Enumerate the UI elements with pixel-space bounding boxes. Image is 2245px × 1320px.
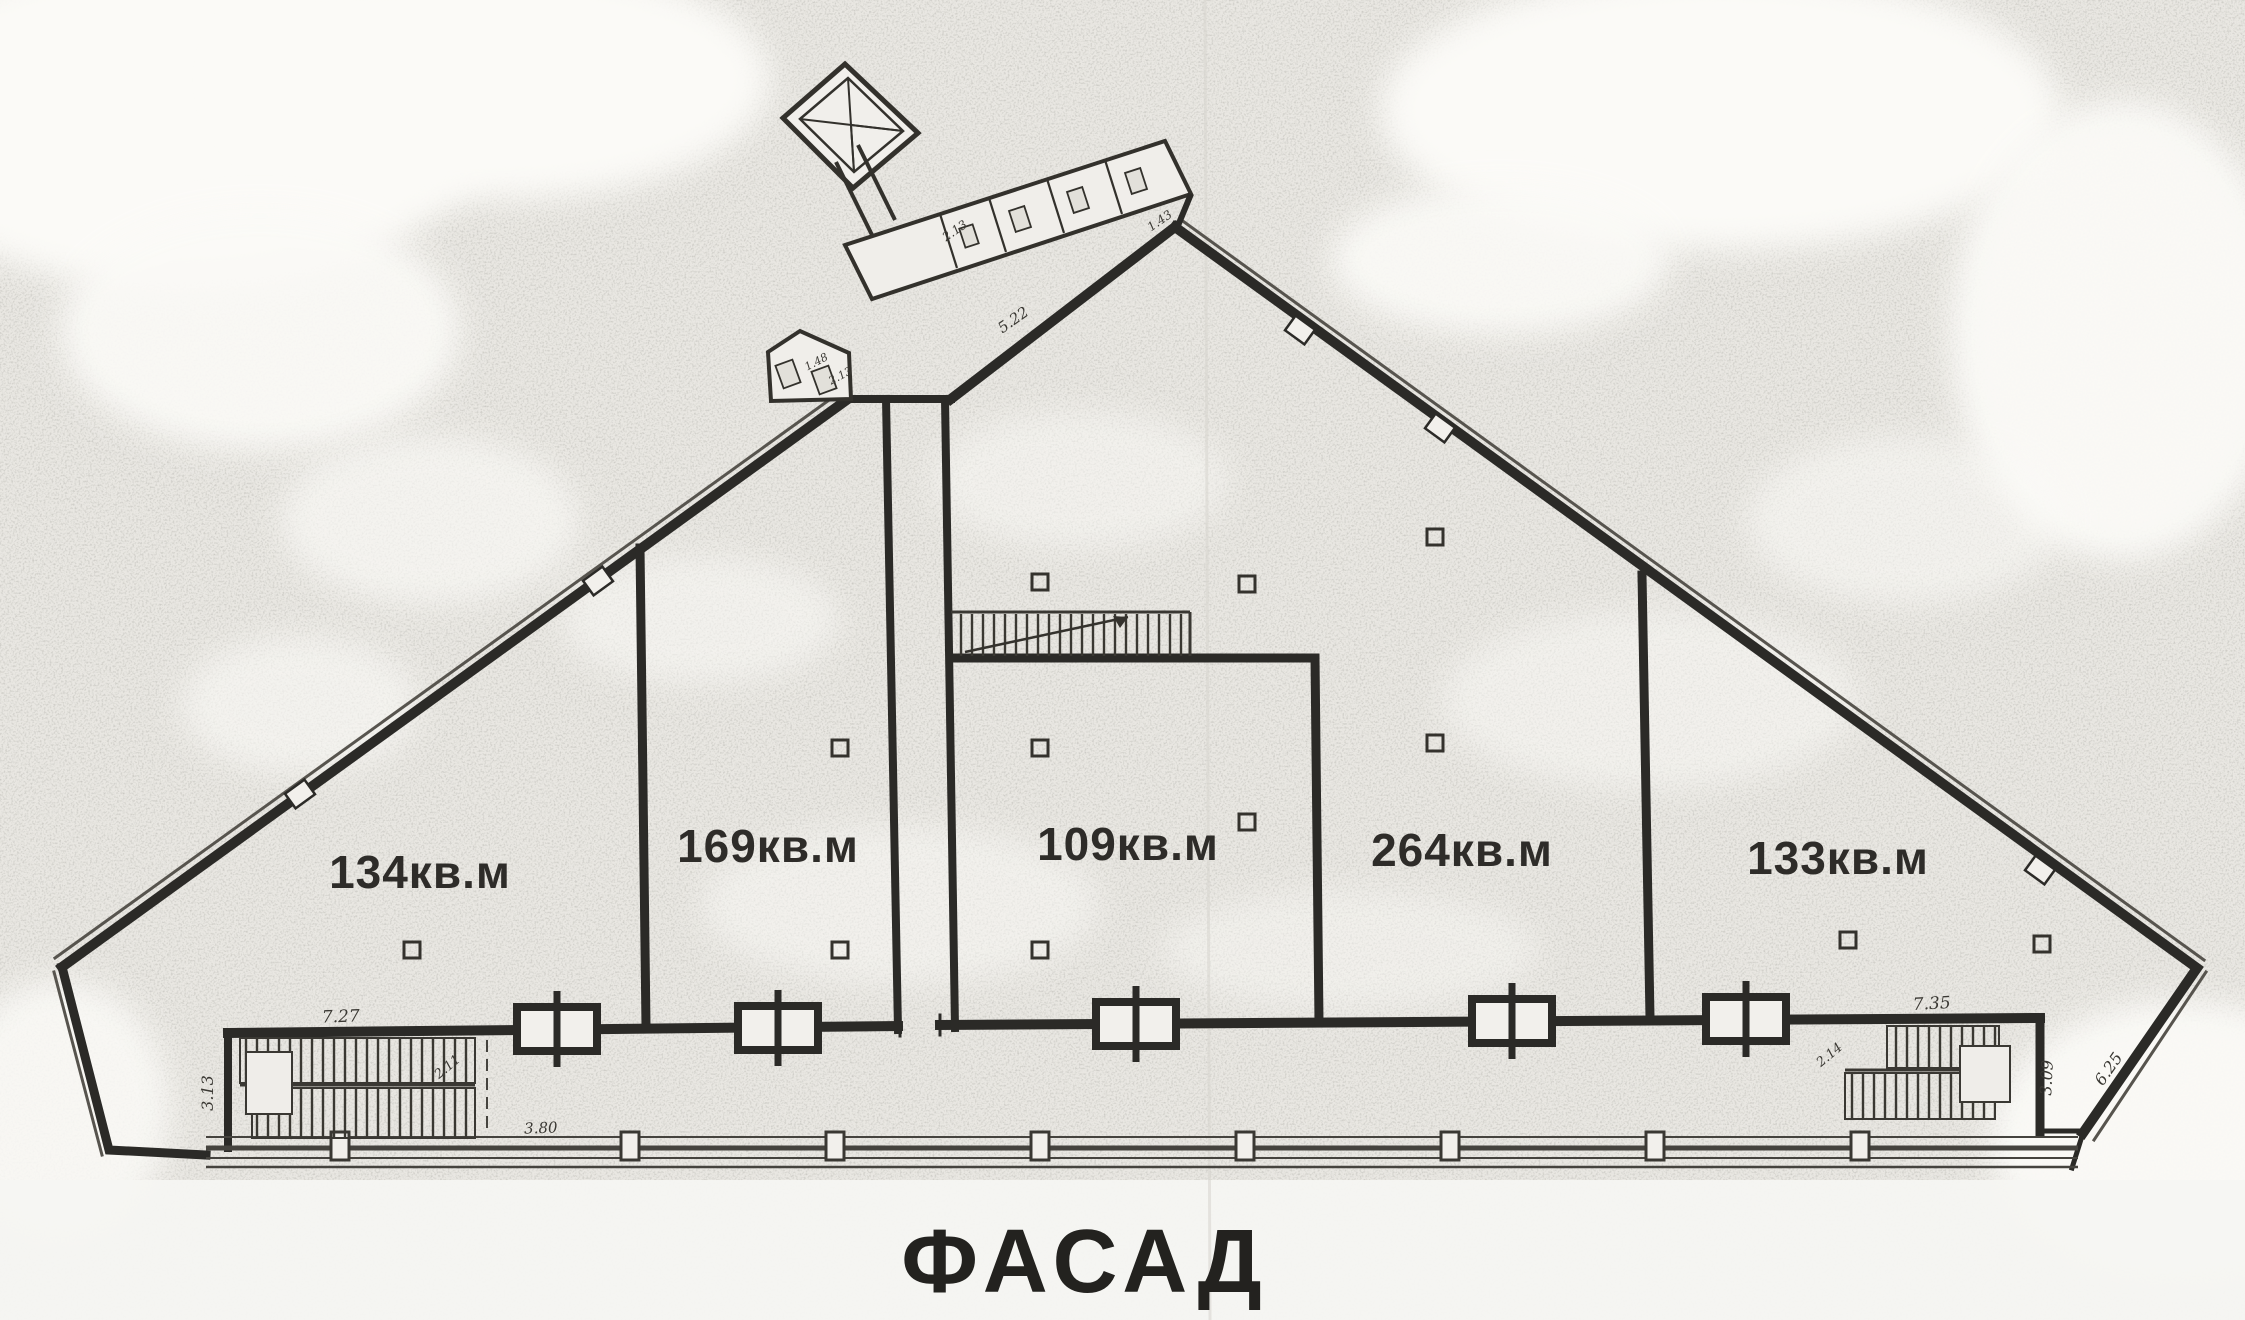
room-area-label-134: 134кв.м <box>329 846 511 898</box>
dim-left-stairs-width: 7.27 <box>322 1006 361 1027</box>
facade-caption: ФАСАД <box>901 1212 1269 1312</box>
room-area-label-169: 169кв.м <box>677 820 859 872</box>
room-area-label-109: 109кв.м <box>1037 818 1219 870</box>
dim-left-wall: 3.13 <box>198 1075 217 1111</box>
floor-plan-drawing: 134кв.м 169кв.м 109кв.м 264кв.м 133кв.м … <box>0 0 2245 1320</box>
floor-plan-scan: 134кв.м 169кв.м 109кв.м 264кв.м 133кв.м … <box>0 0 2245 1320</box>
stair-landing <box>1960 1046 2010 1102</box>
stair-landing <box>246 1052 292 1114</box>
left-staircase <box>240 1038 487 1138</box>
room-area-label-133: 133кв.м <box>1747 832 1929 884</box>
central-stairs <box>951 612 1190 656</box>
dim-right-stairs-width: 7.35 <box>1912 993 1951 1015</box>
room-area-label-264: 264кв.м <box>1371 824 1553 876</box>
dim-right-stairs-depth: 3.09 <box>2036 1059 2057 1096</box>
dim-bottom-left: 3.80 <box>524 1118 558 1137</box>
